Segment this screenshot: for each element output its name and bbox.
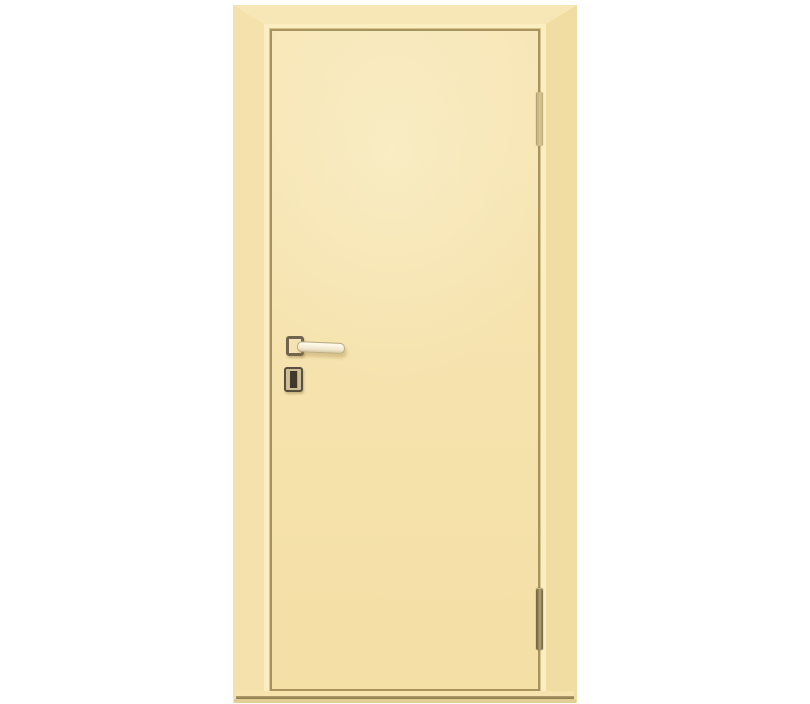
bottom-hinge-icon bbox=[536, 588, 543, 650]
keyhole-icon bbox=[290, 371, 297, 388]
lever-handle bbox=[297, 341, 345, 354]
door-leaf bbox=[270, 29, 540, 691]
keyhole-escutcheon bbox=[284, 367, 303, 392]
door-unit bbox=[233, 5, 577, 703]
threshold-base bbox=[234, 699, 576, 703]
top-hinge-icon bbox=[536, 92, 543, 146]
image-background bbox=[0, 0, 810, 704]
